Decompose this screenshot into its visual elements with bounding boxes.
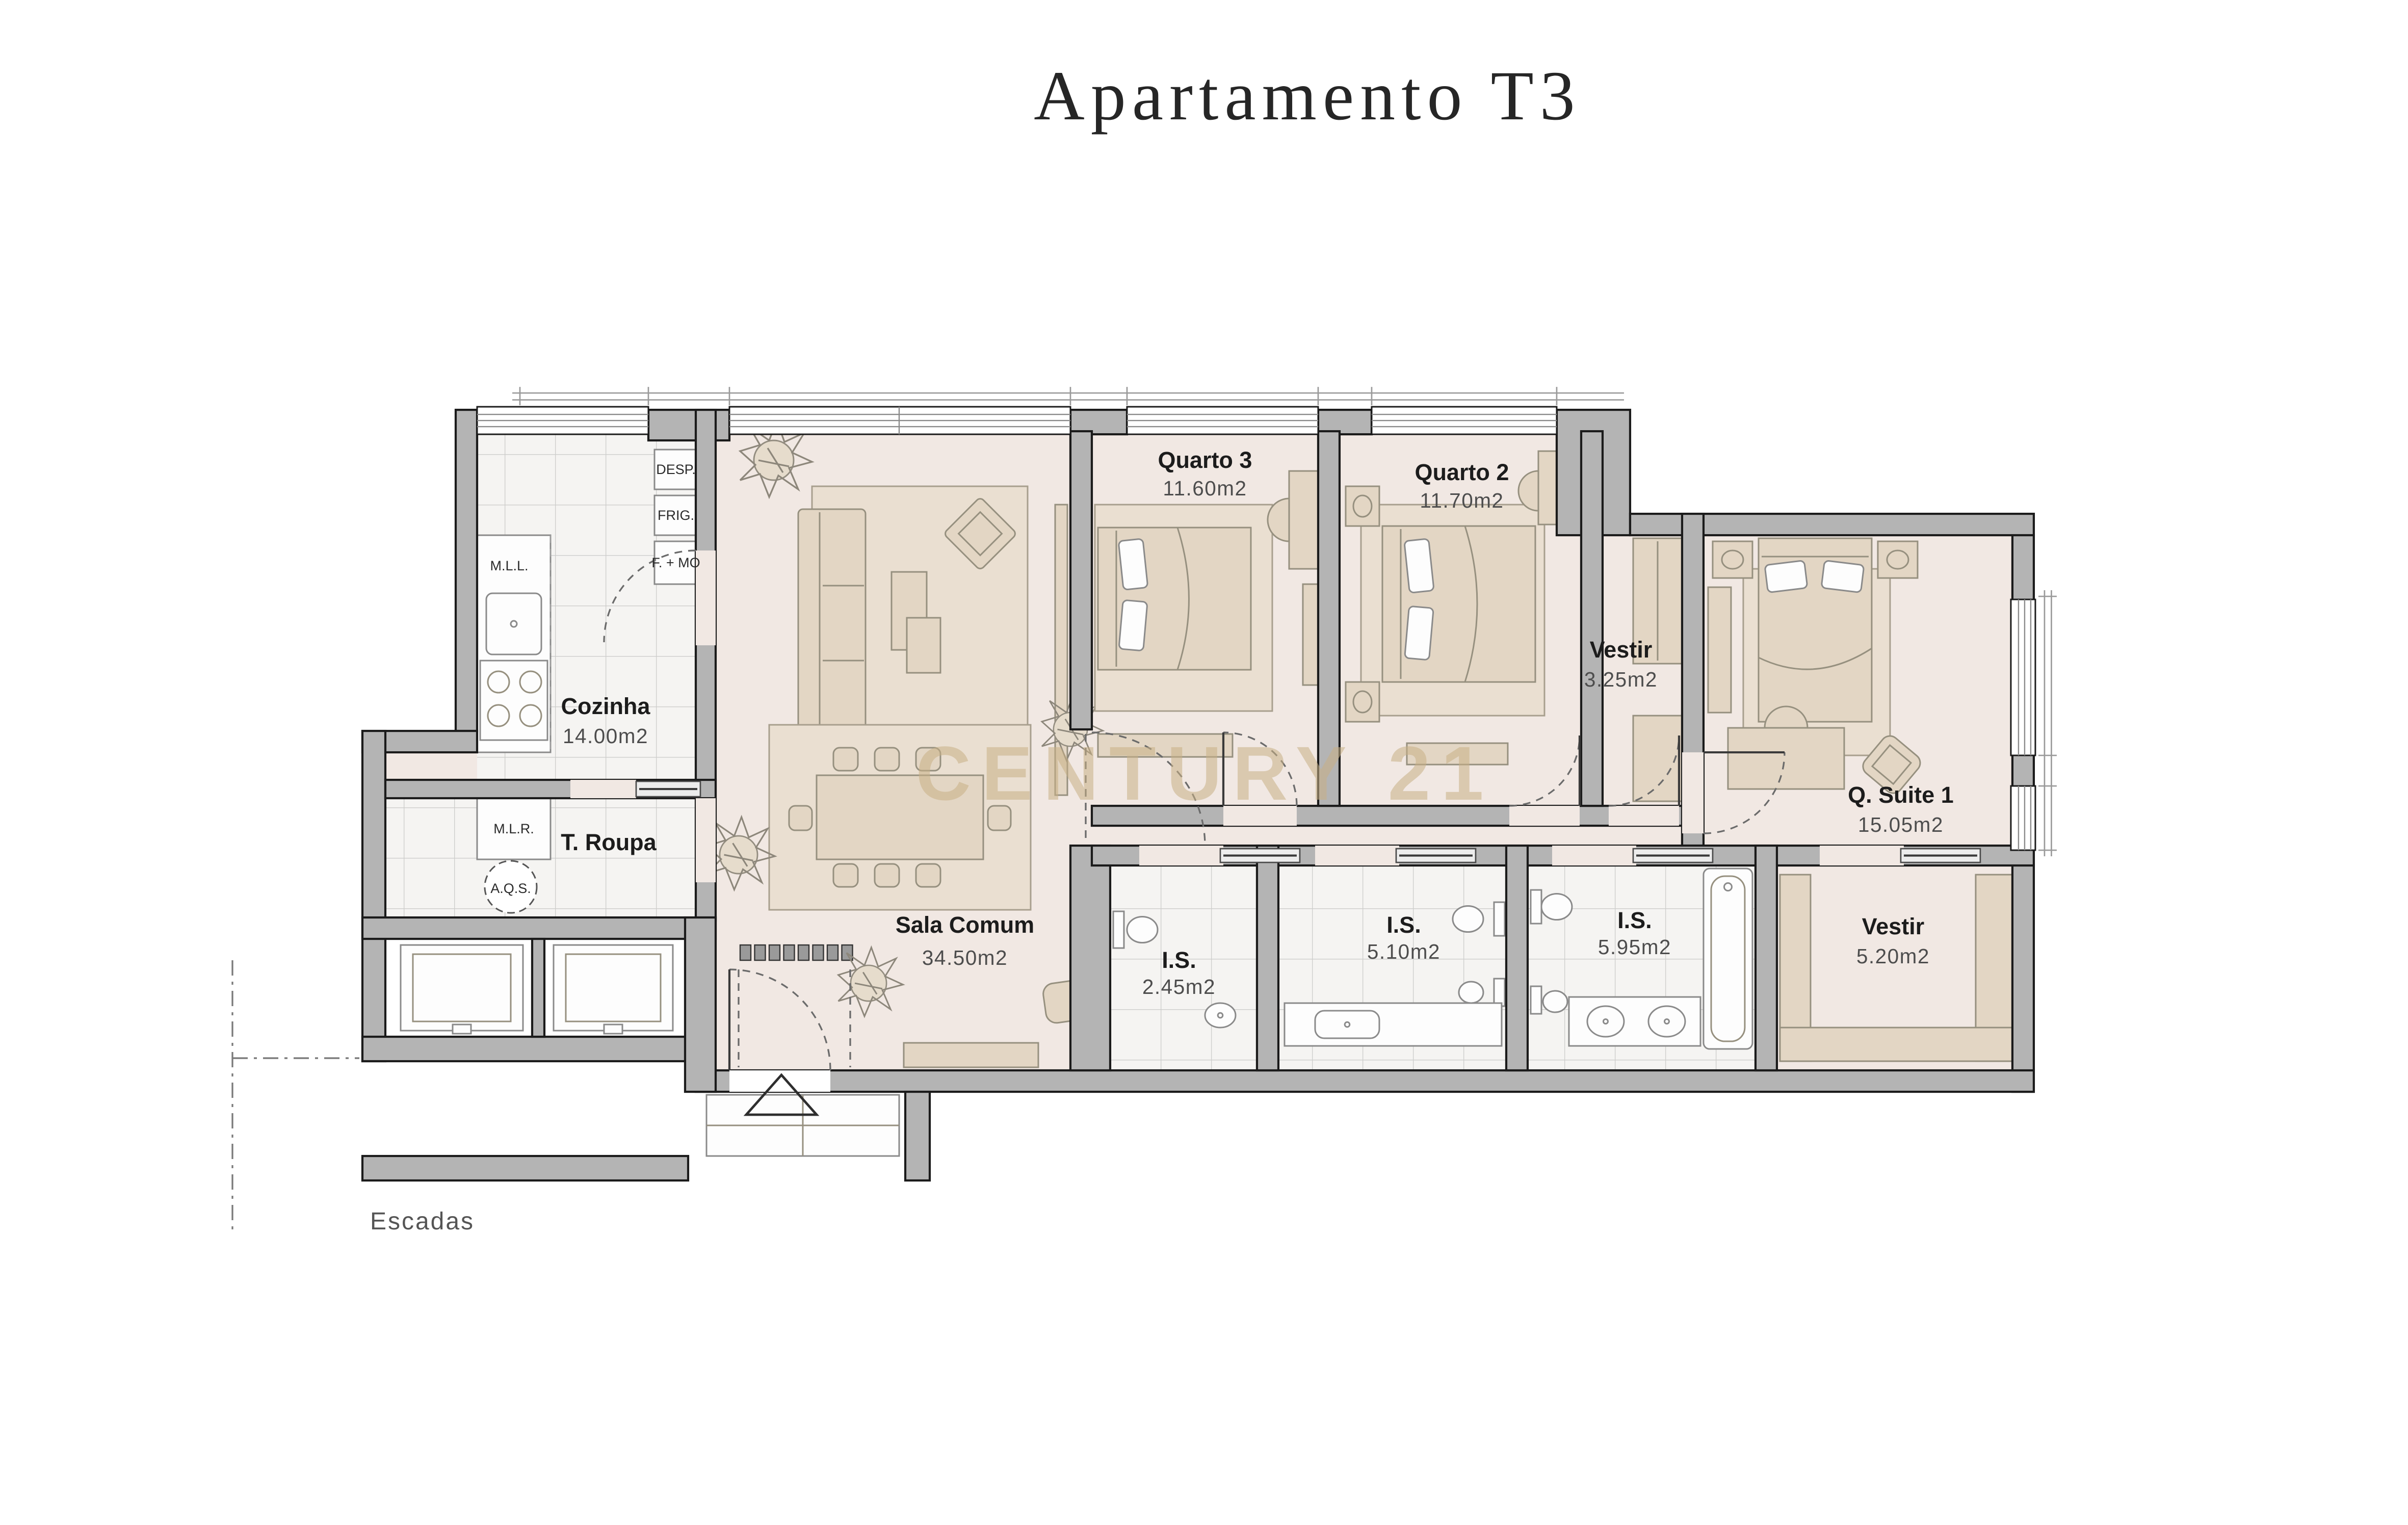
q2-nightstand-bottom [1346,682,1379,722]
suite-nightstand-left [1713,541,1752,578]
label-frig: FRIG. [658,508,694,523]
room-area-sala: 34.50m2 [922,946,1008,969]
room-area-cozinha: 14.00m2 [563,724,648,748]
room-area-quarto2: 11.70m2 [1420,489,1504,512]
suite-wardrobe [1708,587,1731,713]
room-label-troupa: T. Roupa [561,829,657,855]
stairs-label: Escadas [370,1208,475,1235]
room-area-suite: 15.05m2 [1858,813,1944,836]
label-fmo: F. + MO [651,555,700,570]
suite-bed [1759,538,1872,722]
room-area-is-quartos: 5.10m2 [1367,940,1441,963]
q2-nightstand-top [1346,486,1379,526]
bathtub [1704,869,1752,1049]
label-mlr: M.L.R. [493,821,534,836]
floor-plan-svg: CENTURY 21 Apartamento T3 Cozinha 14.00m… [0,0,2408,1525]
room-label-is-quartos: I.S. [1386,912,1421,938]
room-area-vestir-suite: 5.20m2 [1856,944,1930,968]
suite-nightstand-right [1878,541,1918,578]
watermark: CENTURY 21 [915,730,1494,816]
room-area-is-suite: 5.95m2 [1598,935,1671,959]
room-label-quarto2: Quarto 2 [1415,459,1509,485]
label-mll: M.L.L. [490,558,528,573]
floor-plan-page: CENTURY 21 Apartamento T3 Cozinha 14.00m… [0,0,2408,1525]
q2-bed [1382,526,1535,682]
room-label-is-suite: I.S. [1617,907,1652,933]
room-label-vestir-suite: Vestir [1862,913,1925,939]
label-desp: DESP. [656,462,696,477]
room-label-vestir-q: Vestir [1590,637,1653,663]
label-aqs: A.Q.S. [490,881,531,896]
room-area-vestir-q: 3.25m2 [1584,668,1658,691]
coffee-table-2 [907,618,940,673]
room-label-quarto3: Quarto 3 [1158,447,1252,473]
room-label-is-hall: I.S. [1162,947,1196,973]
room-area-quarto3: 11.60m2 [1163,477,1247,500]
kitchen-hob [480,661,547,740]
room-label-cozinha: Cozinha [561,693,651,719]
room-label-suite: Q. Suite 1 [1848,782,1953,808]
room-area-is-hall: 2.45m2 [1142,975,1216,998]
q3-bed [1098,528,1251,670]
room-label-sala: Sala Comum [896,912,1034,938]
sofa [798,509,866,737]
sideboard [904,1043,1038,1067]
landing [706,1095,899,1156]
page-title: Apartamento T3 [1034,57,1581,135]
